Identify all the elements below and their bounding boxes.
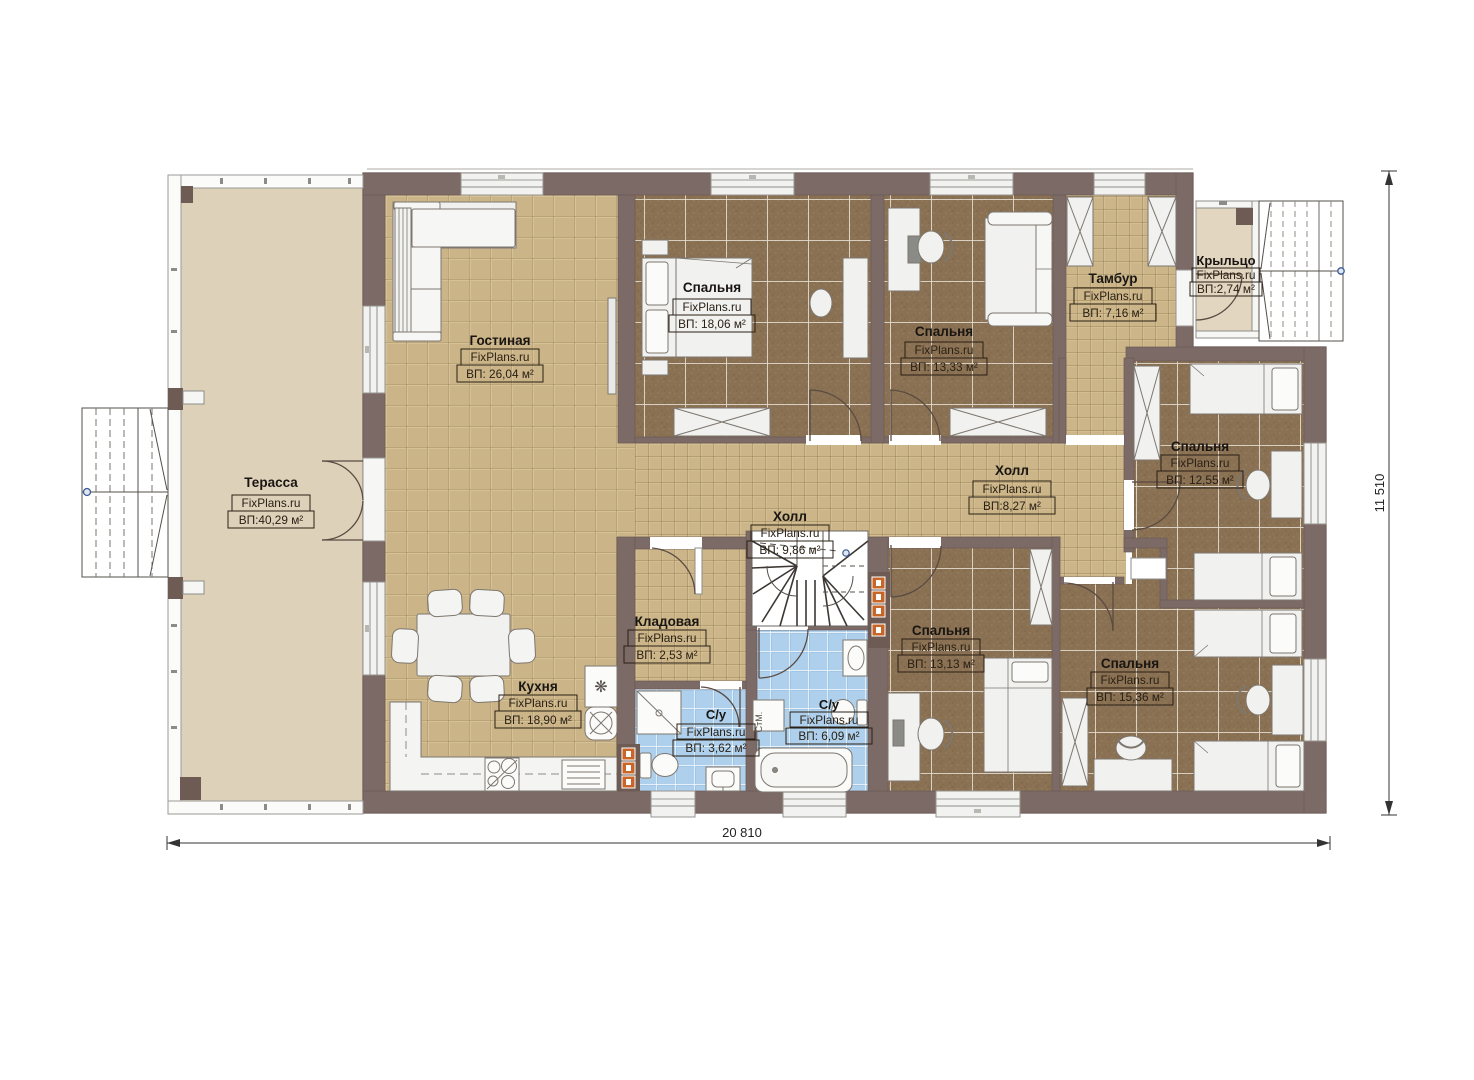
svg-text:FixPlans.ru: FixPlans.ru	[637, 631, 696, 645]
svg-text:ВП:8,27 м²: ВП:8,27 м²	[983, 499, 1041, 513]
svg-text:Холл: Холл	[995, 463, 1029, 478]
svg-text:ВП:2,74 м²: ВП:2,74 м²	[1197, 282, 1255, 296]
svg-text:FixPlans.ru: FixPlans.ru	[914, 343, 973, 357]
svg-text:Крыльцо: Крыльцо	[1196, 253, 1255, 268]
svg-text:Кладовая: Кладовая	[635, 614, 700, 629]
svg-text:FixPlans.ru: FixPlans.ru	[911, 640, 970, 654]
svg-text:FixPlans.ru: FixPlans.ru	[686, 725, 745, 739]
svg-text:FixPlans.ru: FixPlans.ru	[682, 300, 741, 314]
svg-text:Спальня: Спальня	[912, 623, 970, 638]
svg-text:ВП: 6,09 м²: ВП: 6,09 м²	[798, 729, 859, 743]
svg-text:20 810: 20 810	[722, 825, 762, 840]
svg-text:Спальня: Спальня	[1101, 656, 1159, 671]
svg-text:FixPlans.ru: FixPlans.ru	[1100, 673, 1159, 687]
svg-text:ВП: 12,55 м²: ВП: 12,55 м²	[1166, 473, 1234, 487]
svg-text:Спальня: Спальня	[1171, 439, 1229, 454]
svg-text:Терасса: Терасса	[244, 475, 298, 490]
svg-text:С/у: С/у	[706, 707, 727, 722]
svg-text:ВП: 13,33 м²: ВП: 13,33 м²	[910, 360, 978, 374]
svg-text:ВП: 26,04 м²: ВП: 26,04 м²	[466, 367, 534, 381]
svg-text:ВП: 18,06 м²: ВП: 18,06 м²	[678, 317, 746, 331]
svg-text:Кухня: Кухня	[518, 679, 557, 694]
svg-text:FixPlans.ru: FixPlans.ru	[760, 526, 819, 540]
svg-text:❋: ❋	[594, 679, 607, 696]
svg-text:Тамбур: Тамбур	[1089, 271, 1138, 286]
svg-text:FixPlans.ru: FixPlans.ru	[508, 696, 567, 710]
svg-text:ВП: 18,90 м²: ВП: 18,90 м²	[504, 713, 572, 727]
svg-text:FixPlans.ru: FixPlans.ru	[241, 496, 300, 510]
svg-text:ВП: 3,62 м²: ВП: 3,62 м²	[685, 741, 746, 755]
svg-text:FixPlans.ru: FixPlans.ru	[1170, 456, 1229, 470]
svg-text:ВП: 2,53 м²: ВП: 2,53 м²	[636, 648, 697, 662]
svg-text:FixPlans.ru: FixPlans.ru	[982, 482, 1041, 496]
svg-text:FixPlans.ru: FixPlans.ru	[470, 350, 529, 364]
svg-text:ВП:40,29 м²: ВП:40,29 м²	[239, 513, 304, 527]
svg-text:FixPlans.ru: FixPlans.ru	[1083, 289, 1142, 303]
svg-text:Гостиная: Гостиная	[469, 333, 530, 348]
svg-text:С/у: С/у	[819, 697, 840, 712]
svg-text:ВП: 13,13 м²: ВП: 13,13 м²	[907, 657, 975, 671]
svg-text:FixPlans.ru: FixPlans.ru	[799, 713, 858, 727]
svg-text:Спальня: Спальня	[915, 324, 973, 339]
svg-text:11 510: 11 510	[1372, 474, 1387, 513]
svg-text:ВП: 7,16 м²: ВП: 7,16 м²	[1082, 306, 1143, 320]
svg-text:Спальня: Спальня	[683, 280, 741, 295]
svg-text:ВП: 9,86 м²: ВП: 9,86 м²	[759, 543, 820, 557]
svg-text:ВП: 15,36 м²: ВП: 15,36 м²	[1096, 690, 1164, 704]
svg-text:Холл: Холл	[773, 509, 807, 524]
svg-text:FixPlans.ru: FixPlans.ru	[1196, 268, 1255, 282]
